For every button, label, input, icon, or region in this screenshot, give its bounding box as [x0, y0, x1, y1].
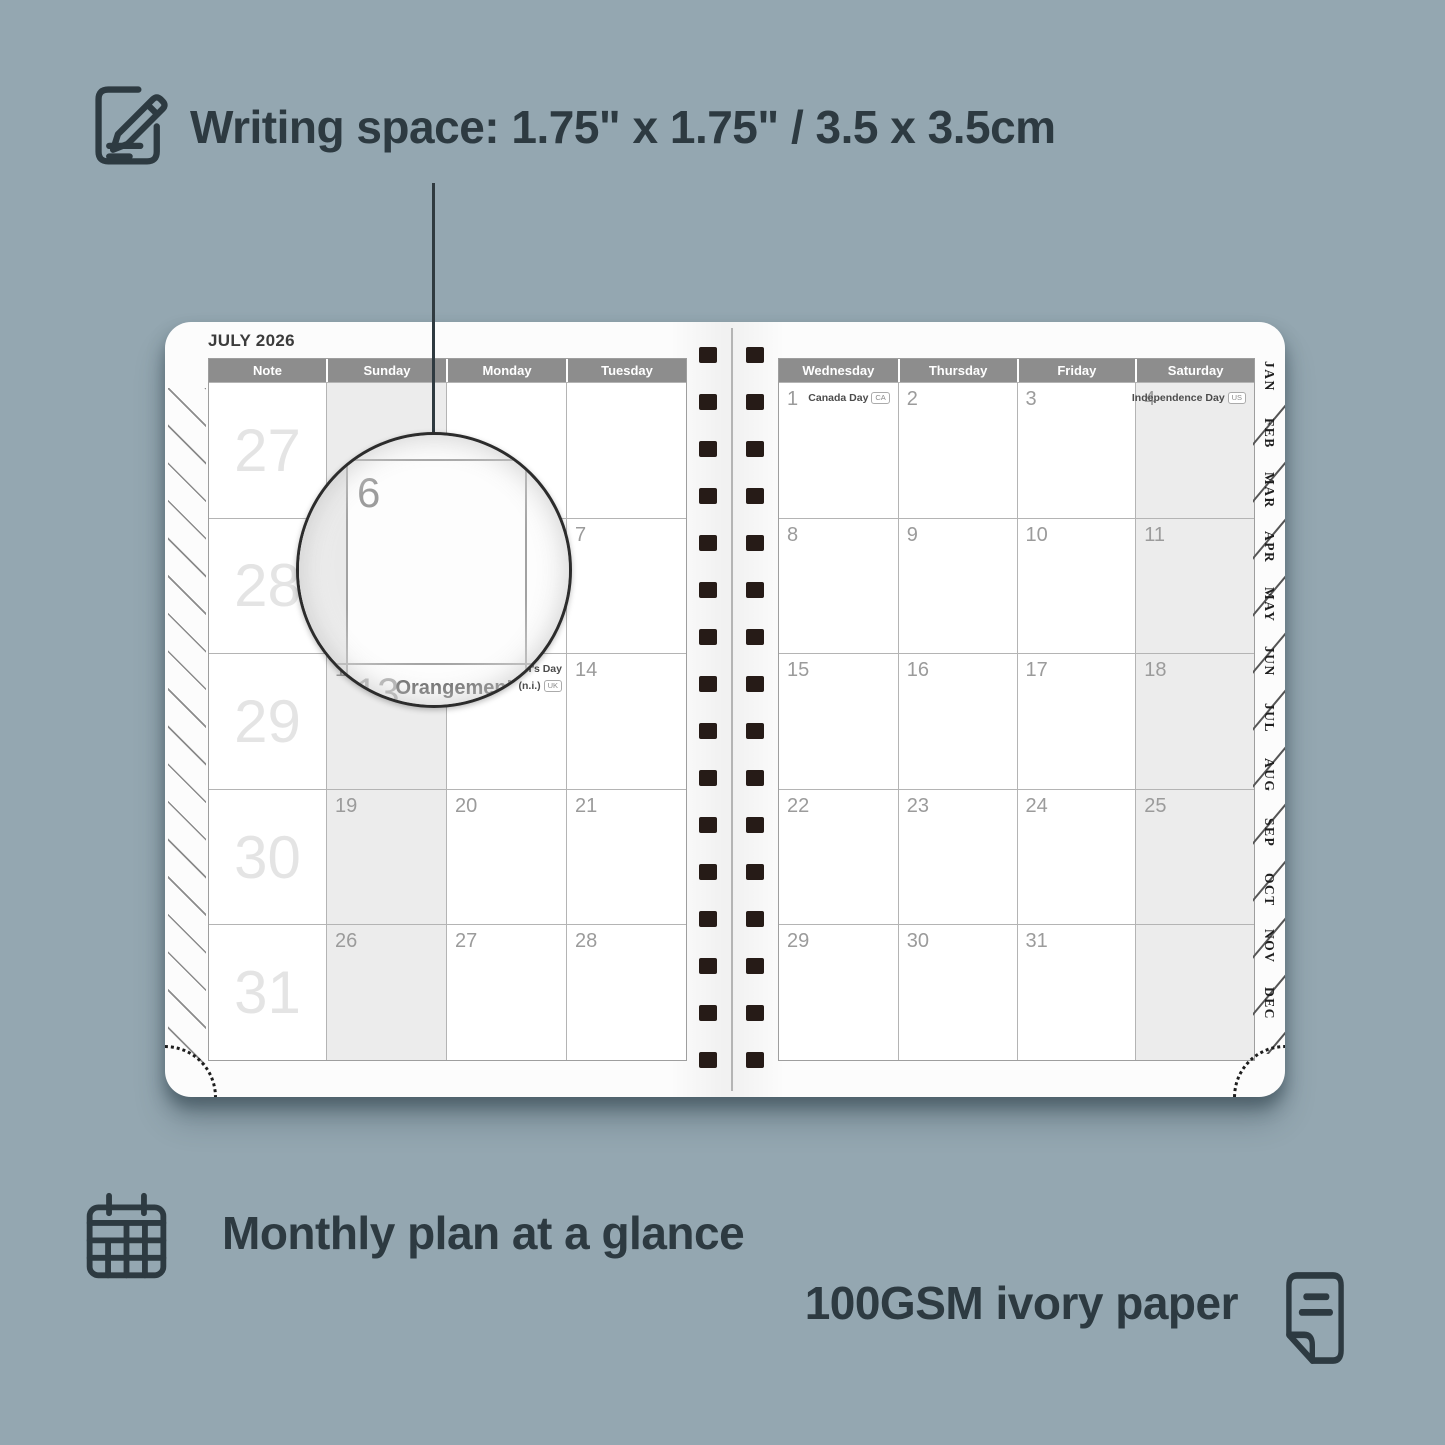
- month-tab-label: OCT: [1261, 873, 1277, 907]
- writing-space-caption: Writing space: 1.75" x 1.75" / 3.5 x 3.5…: [190, 100, 1056, 154]
- day-number: 20: [455, 795, 477, 818]
- binding-hole: [746, 488, 764, 504]
- calendar-grid-icon: [78, 1188, 175, 1285]
- binding-hole: [746, 817, 764, 833]
- binding-hole: [699, 582, 717, 598]
- day-number: 26: [335, 930, 357, 953]
- week-number: 30: [209, 789, 326, 925]
- day-cell: 18: [1135, 653, 1254, 789]
- month-tab-sep: SEP: [1253, 804, 1285, 861]
- day-cell: 23: [898, 789, 1017, 925]
- binding-hole: [699, 629, 717, 645]
- day-cell: 9: [898, 518, 1017, 654]
- column-header: Friday: [1017, 359, 1136, 382]
- binding-hole: [699, 676, 717, 692]
- day-cell: 2: [898, 382, 1017, 518]
- month-tab-mar: MAR: [1253, 462, 1285, 519]
- day-number: 19: [335, 795, 357, 818]
- month-tab-jun: JUN: [1253, 633, 1285, 690]
- day-number: 15: [787, 659, 809, 682]
- binding-hole: [699, 723, 717, 739]
- day-number: 22: [787, 795, 809, 818]
- month-tab-label: NOV: [1261, 929, 1277, 964]
- product-image-canvas: Writing space: 1.75" x 1.75" / 3.5 x 3.5…: [0, 0, 1445, 1445]
- month-tab-apr: APR: [1253, 519, 1285, 576]
- day-number: 31: [1026, 930, 1048, 953]
- right-page-grid: WednesdayThursdayFridaySaturday1Canada D…: [778, 358, 1255, 1061]
- month-tab-label: MAR: [1261, 472, 1277, 509]
- binding-hole: [746, 394, 764, 410]
- binding-hole: [746, 347, 764, 363]
- binding-hole: [699, 488, 717, 504]
- day-cell: 19: [326, 789, 446, 925]
- month-tab-jan: JAN: [1253, 348, 1285, 405]
- monthly-plan-caption: Monthly plan at a glance: [222, 1206, 744, 1260]
- month-tab-label: MAY: [1261, 587, 1277, 623]
- day-cell: 20: [446, 789, 566, 925]
- day-cell: 16: [898, 653, 1017, 789]
- day-number: 11: [1144, 524, 1165, 547]
- binding-hole: [746, 770, 764, 786]
- week-number: 31: [209, 924, 326, 1060]
- day-cell: 22: [779, 789, 898, 925]
- spine-shadow: [670, 322, 785, 1097]
- day-cell: 26: [326, 924, 446, 1060]
- day-cell: 27: [446, 924, 566, 1060]
- day-cell: 25: [1135, 789, 1254, 925]
- day-number: 17: [1026, 659, 1048, 682]
- day-number: 24: [1026, 795, 1048, 818]
- month-tab-oct: OCT: [1253, 861, 1285, 918]
- spine-line: [731, 328, 733, 1091]
- month-tab-label: JUL: [1261, 703, 1277, 733]
- column-header: Monday: [446, 359, 566, 382]
- month-tab-label: APR: [1261, 531, 1277, 563]
- month-title: JULY 2026: [208, 331, 295, 351]
- paper-icon: [1270, 1262, 1360, 1374]
- day-number: 9: [907, 524, 918, 547]
- binding-hole: [746, 723, 764, 739]
- day-number: 10: [1026, 524, 1048, 547]
- binding-hole: [746, 958, 764, 974]
- binding-hole: [699, 911, 717, 927]
- column-header: Note: [209, 359, 326, 382]
- day-cell: [1135, 924, 1254, 1060]
- column-header: Thursday: [898, 359, 1017, 382]
- day-cell: 30: [898, 924, 1017, 1060]
- binding-hole: [746, 582, 764, 598]
- binding-hole: [746, 911, 764, 927]
- day-cell: [566, 382, 686, 518]
- day-number: 27: [455, 930, 477, 953]
- country-badge: UK: [544, 680, 562, 692]
- day-cell: 1Canada Day CA: [779, 382, 898, 518]
- binding-hole: [699, 817, 717, 833]
- day-number: 21: [575, 795, 597, 818]
- pointer-line: [432, 183, 435, 436]
- binding-hole: [699, 1052, 717, 1068]
- edge-hatch: [168, 388, 206, 1064]
- column-header: Sunday: [326, 359, 446, 382]
- binding-hole: [746, 676, 764, 692]
- day-number: 16: [907, 659, 929, 682]
- day-cell: 10: [1017, 518, 1136, 654]
- month-tab-dec: DEC: [1253, 975, 1285, 1032]
- magnifier-circle: 6 13 Orangemen’s Day (n.i.) UK: [296, 432, 572, 708]
- binding-hole: [699, 394, 717, 410]
- day-cell: 8: [779, 518, 898, 654]
- paper-caption: 100GSM ivory paper: [805, 1276, 1238, 1330]
- day-cell: 7: [566, 518, 686, 654]
- day-cell: 15: [779, 653, 898, 789]
- day-cell: 14: [566, 653, 686, 789]
- binding-hole: [746, 441, 764, 457]
- binding-hole: [699, 770, 717, 786]
- day-cell: 4Independence Day US: [1135, 382, 1254, 518]
- day-number: 25: [1144, 795, 1166, 818]
- column-header: Wednesday: [779, 359, 898, 382]
- day-number: 1: [787, 388, 798, 411]
- binding-hole: [746, 864, 764, 880]
- day-cell: 24: [1017, 789, 1136, 925]
- month-tab-feb: FEB: [1253, 405, 1285, 462]
- day-number: 2: [907, 388, 918, 411]
- holiday-label: Canada Day CA: [808, 390, 889, 407]
- day-number: 3: [1026, 388, 1037, 411]
- country-badge: CA: [871, 392, 889, 404]
- day-number: 7: [575, 524, 586, 547]
- month-tab-strip: JANFEBMARAPRMAYJUNJULAUGSEPOCTNOVDEC: [1253, 348, 1285, 1054]
- day-cell: 31: [1017, 924, 1136, 1060]
- holiday-label: Independence Day US: [1132, 390, 1246, 407]
- day-cell: 17: [1017, 653, 1136, 789]
- binding-hole: [746, 629, 764, 645]
- column-header: Saturday: [1135, 359, 1254, 382]
- binding-hole: [746, 1052, 764, 1068]
- month-tab-label: AUG: [1261, 758, 1277, 793]
- binding-hole: [699, 864, 717, 880]
- month-tab-label: DEC: [1261, 987, 1277, 1020]
- binding-hole: [699, 441, 717, 457]
- month-tab-label: JAN: [1261, 361, 1277, 392]
- column-header: Tuesday: [566, 359, 686, 382]
- binding-hole: [699, 535, 717, 551]
- day-cell: 3: [1017, 382, 1136, 518]
- month-tab-aug: AUG: [1253, 747, 1285, 804]
- day-number: 18: [1144, 659, 1166, 682]
- binding-hole: [699, 347, 717, 363]
- binding-hole: [699, 1005, 717, 1021]
- month-tab-label: JUN: [1261, 646, 1277, 677]
- magnifier-vignette: [299, 435, 569, 705]
- day-cell: 28: [566, 924, 686, 1060]
- country-badge: US: [1228, 392, 1246, 404]
- day-cell: 11: [1135, 518, 1254, 654]
- month-tab-jul: JUL: [1253, 690, 1285, 747]
- day-cell: 21: [566, 789, 686, 925]
- day-cell: 29: [779, 924, 898, 1060]
- writing-note-icon: [84, 76, 181, 173]
- day-number: 30: [907, 930, 929, 953]
- month-tab-label: SEP: [1261, 818, 1277, 847]
- day-number: 29: [787, 930, 809, 953]
- month-tab-label: FEB: [1261, 418, 1277, 449]
- month-tab-nov: NOV: [1253, 918, 1285, 975]
- day-number: 8: [787, 524, 798, 547]
- binding-hole: [746, 1005, 764, 1021]
- day-number: 14: [575, 659, 597, 682]
- binding-hole: [746, 535, 764, 551]
- day-number: 23: [907, 795, 929, 818]
- binding-hole: [699, 958, 717, 974]
- month-tab-may: MAY: [1253, 576, 1285, 633]
- day-number: 28: [575, 930, 597, 953]
